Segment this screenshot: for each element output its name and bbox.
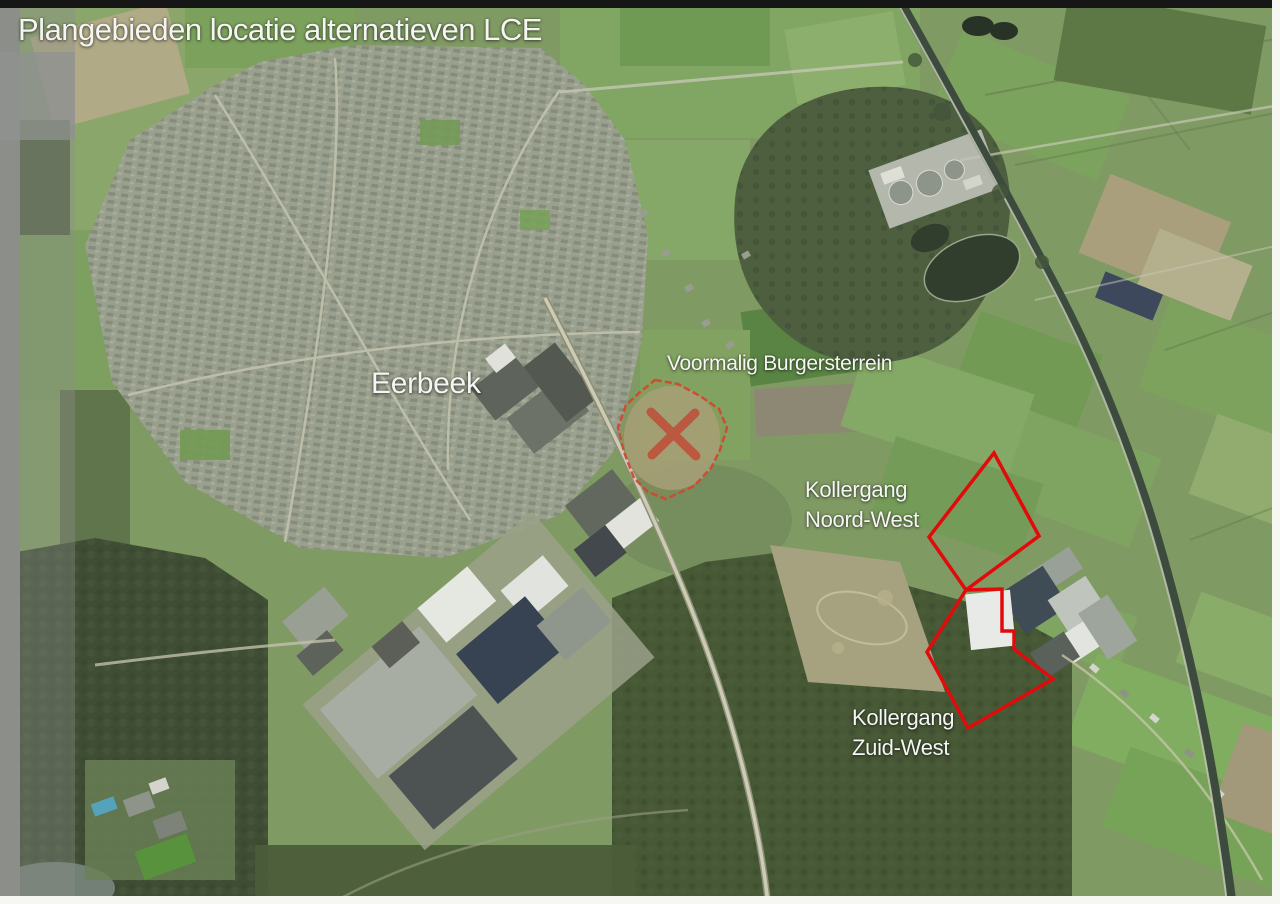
site-label-kollergang-noordwest: Kollergang Noord-West: [805, 475, 919, 535]
site-label-kollergang-zuidwest: Kollergang Zuid-West: [852, 703, 954, 763]
town-label-eerbeek: Eerbeek: [371, 366, 481, 402]
map-title: Plangebieden locatie alternatieven LCE: [18, 11, 542, 48]
aerial-map: [0, 0, 1280, 904]
plangebieden-map-figure: Plangebieden locatie alternatieven LCE E…: [0, 0, 1280, 904]
site-label-kollergang-noordwest-line1: Kollergang: [805, 475, 919, 505]
site-label-kollergang-noordwest-line2: Noord-West: [805, 505, 919, 535]
site-label-burgersterrein: Voormalig Burgersterrein: [667, 351, 892, 376]
site-label-kollergang-zuidwest-line2: Zuid-West: [852, 733, 954, 763]
site-label-kollergang-zuidwest-line1: Kollergang: [852, 703, 954, 733]
